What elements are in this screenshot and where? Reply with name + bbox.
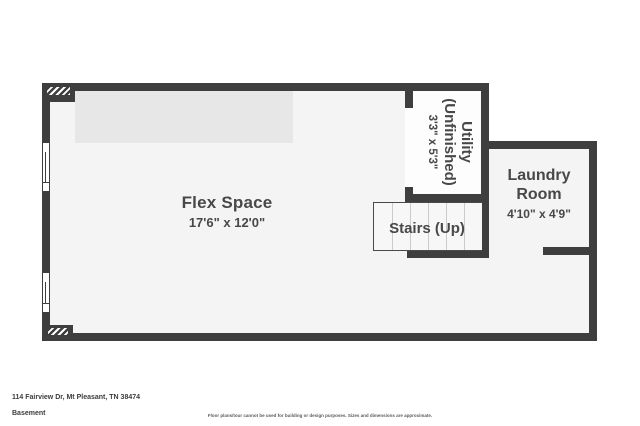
- window-symbol-lower: [42, 272, 50, 313]
- floor-plan-canvas: Flex Space 17'6" x 12'0" Utility (Unfini…: [0, 0, 640, 426]
- room-dimensions: 4'10" x 4'9": [489, 207, 589, 221]
- room-name: (Unfinished): [441, 87, 458, 197]
- room-dimensions: 17'6" x 12'0": [107, 215, 347, 231]
- flex-space-label: Flex Space 17'6" x 12'0": [107, 193, 347, 231]
- hatch-marker-bottom-left: [42, 325, 73, 341]
- property-address: 114 Fairview Dr, Mt Pleasant, TN 38474: [12, 394, 140, 401]
- room-dimensions: 3'3" x 5'3": [425, 87, 438, 197]
- window-frame: [42, 151, 50, 183]
- hatch-stripes-icon: [48, 328, 68, 335]
- wall-bottom: [42, 333, 597, 341]
- wall-right: [589, 141, 597, 341]
- hatch-stripes-icon: [47, 87, 70, 95]
- wall-utility-right: [481, 83, 489, 258]
- window-symbol-upper: [42, 142, 50, 192]
- room-name: Utility: [458, 87, 475, 197]
- laundry-room-label: Laundry Room 4'10" x 4'9": [489, 166, 589, 222]
- window-frame-cap: [42, 182, 50, 192]
- window-glass-line: [45, 152, 46, 182]
- room-name: Laundry: [489, 166, 589, 185]
- wall-utility-left-upper-stub: [405, 91, 413, 108]
- utility-room-label: Utility (Unfinished) 3'3" x 5'3": [419, 87, 475, 197]
- wall-laundry-bottom: [543, 247, 597, 255]
- upper-shaded-band: [75, 91, 293, 143]
- disclaimer-text: Floor plans/tour cannot be used for buil…: [0, 413, 640, 418]
- utility-doorway-opening: [405, 108, 413, 187]
- hatch-marker-top-left: [42, 83, 75, 102]
- window-frame-cap: [42, 303, 50, 313]
- room-name: Flex Space: [107, 193, 347, 213]
- window-glass-line: [45, 282, 46, 303]
- window-frame: [42, 281, 50, 304]
- room-name: Room: [489, 185, 589, 204]
- wall-laundry-top: [489, 141, 597, 149]
- stairs-label: Stairs (Up): [373, 220, 481, 238]
- wall-utility-left-lower-stub: [405, 187, 413, 194]
